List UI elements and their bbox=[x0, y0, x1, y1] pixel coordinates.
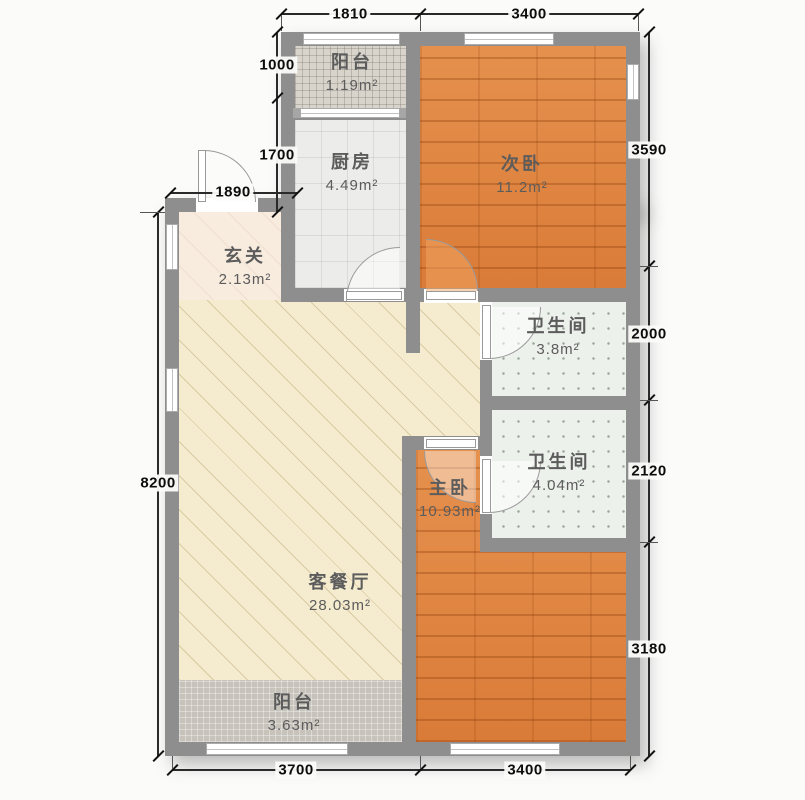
room-area: 3.63m² bbox=[268, 717, 321, 734]
extension-line bbox=[172, 756, 173, 769]
extension-line bbox=[630, 756, 631, 769]
window bbox=[166, 368, 178, 412]
dim-right-2000: 2000 bbox=[628, 326, 669, 343]
room-area: 4.04m² bbox=[528, 477, 591, 494]
window bbox=[627, 64, 639, 100]
extension-line bbox=[640, 266, 658, 267]
room-label-bath-upper: 卫生间 3.8m² bbox=[527, 312, 590, 358]
dim-bottom-3700: 3700 bbox=[275, 762, 316, 779]
room-area: 1.19m² bbox=[326, 77, 379, 94]
dim-right-2120: 2120 bbox=[628, 463, 669, 480]
kitchen-door-leaf bbox=[346, 291, 402, 300]
wall bbox=[480, 396, 626, 410]
room-label-bedroom-master: 主卧 10.93m² bbox=[419, 474, 481, 520]
room-area: 2.13m² bbox=[219, 271, 272, 288]
room-name: 卫生间 bbox=[528, 448, 591, 474]
extension-line bbox=[420, 756, 421, 769]
dim-left-1890: 1890 bbox=[212, 184, 253, 201]
window bbox=[450, 743, 560, 755]
room-area: 3.8m² bbox=[527, 341, 590, 358]
extension-line bbox=[140, 212, 165, 213]
wall bbox=[406, 32, 420, 353]
room-label-bath-lower: 卫生间 4.04m² bbox=[528, 448, 591, 494]
dim-top-1810: 1810 bbox=[329, 6, 370, 23]
floor-plan-canvas: 阳台 1.19m² 厨房 4.49m² 次卧 11.2m² 玄关 2.13m² … bbox=[0, 0, 805, 800]
window bbox=[206, 743, 348, 755]
room-name: 客餐厅 bbox=[309, 568, 372, 594]
room-area: 4.49m² bbox=[326, 177, 379, 194]
dim-left-1700: 1700 bbox=[256, 147, 297, 164]
window bbox=[464, 33, 554, 45]
extension-line bbox=[420, 15, 421, 31]
bath-upper-door-leaf bbox=[482, 305, 491, 359]
dim-left-1000: 1000 bbox=[256, 57, 297, 74]
extension-line bbox=[640, 542, 658, 543]
room-name: 玄关 bbox=[219, 242, 272, 268]
room-name: 阳台 bbox=[326, 48, 379, 74]
room-label-balcony-bottom: 阳台 3.63m² bbox=[268, 688, 321, 734]
wall bbox=[402, 436, 416, 742]
extension-line bbox=[640, 400, 658, 401]
bedroom-master-door-leaf bbox=[426, 439, 476, 448]
extension-line bbox=[638, 15, 639, 31]
room-name: 主卧 bbox=[419, 474, 481, 500]
dim-left-8200: 8200 bbox=[137, 475, 178, 492]
room-label-living-dining: 客餐厅 28.03m² bbox=[309, 568, 372, 614]
room-name: 次卧 bbox=[496, 150, 548, 176]
room-name: 厨房 bbox=[326, 148, 379, 174]
room-label-balcony-top: 阳台 1.19m² bbox=[326, 48, 379, 94]
bedroom-second-door-leaf bbox=[426, 291, 476, 300]
wall bbox=[480, 538, 626, 552]
dimension-line-bottom bbox=[172, 769, 630, 771]
dim-top-3400: 3400 bbox=[508, 6, 549, 23]
room-area: 28.03m² bbox=[309, 597, 372, 614]
dim-right-3590: 3590 bbox=[628, 142, 669, 159]
window bbox=[303, 33, 400, 45]
room-area: 11.2m² bbox=[496, 179, 548, 196]
dim-right-3180: 3180 bbox=[628, 641, 669, 658]
room-label-kitchen: 厨房 4.49m² bbox=[326, 148, 379, 194]
window-balcony-kitchen bbox=[300, 108, 400, 118]
room-name: 卫生间 bbox=[527, 312, 590, 338]
room-label-bedroom-second: 次卧 11.2m² bbox=[496, 150, 548, 196]
room-name: 阳台 bbox=[268, 688, 321, 714]
dim-bottom-3400: 3400 bbox=[504, 762, 545, 779]
bath-lower-door-leaf bbox=[482, 459, 491, 513]
room-label-entry: 玄关 2.13m² bbox=[219, 242, 272, 288]
window bbox=[166, 224, 178, 270]
room-area: 10.93m² bbox=[419, 503, 481, 520]
